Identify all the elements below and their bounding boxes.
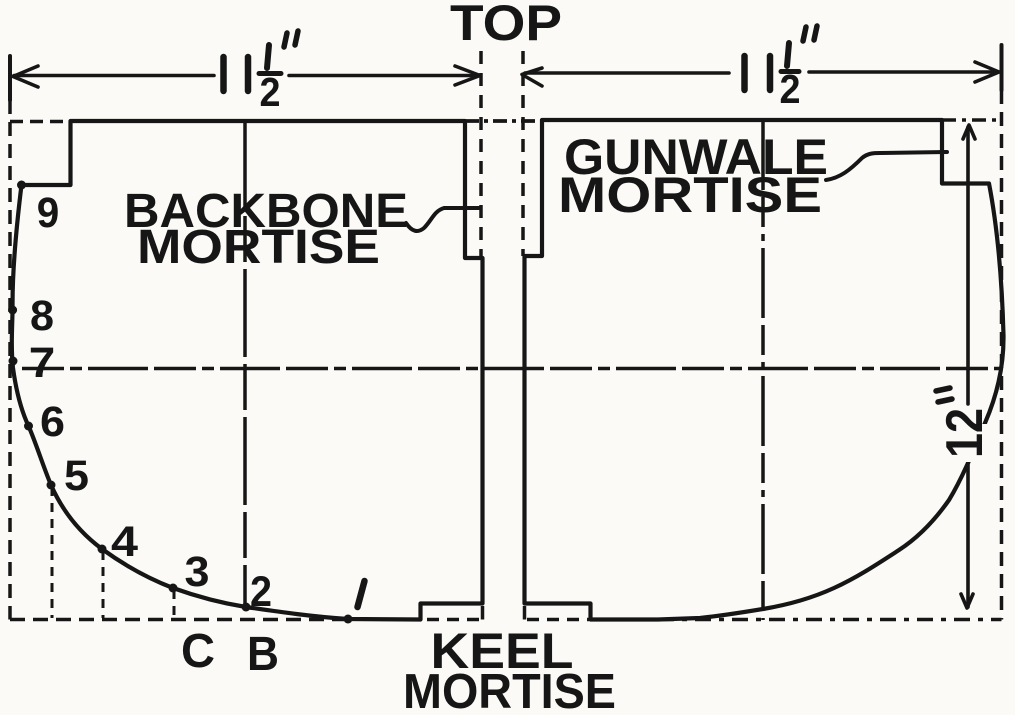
svg-text:7: 7: [29, 339, 56, 387]
svg-text:MORTISE: MORTISE: [137, 221, 380, 274]
svg-text:MORTISE: MORTISE: [403, 665, 616, 715]
svg-text:C: C: [181, 625, 215, 678]
svg-text:4: 4: [111, 518, 138, 566]
svg-text:2: 2: [260, 69, 281, 115]
svg-text:9: 9: [37, 189, 60, 237]
svg-text:12: 12: [936, 408, 994, 458]
svg-text:2: 2: [780, 66, 801, 112]
svg-text:6: 6: [40, 398, 65, 446]
svg-text:B: B: [247, 628, 279, 681]
svg-text:MORTISE: MORTISE: [558, 167, 822, 223]
svg-text:5: 5: [64, 452, 89, 500]
svg-text:2: 2: [250, 568, 272, 616]
svg-text:TOP: TOP: [450, 0, 562, 51]
svg-text:3: 3: [185, 548, 210, 596]
svg-text:8: 8: [30, 292, 54, 340]
